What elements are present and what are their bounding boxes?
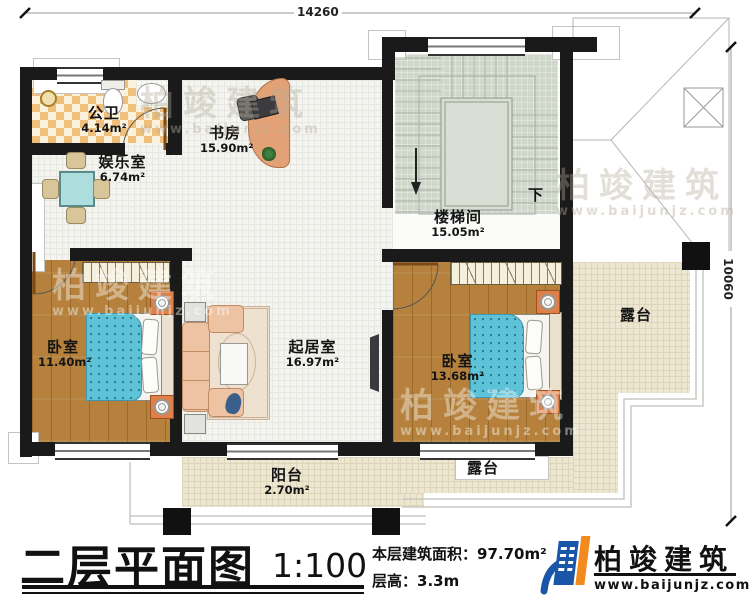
floor-height-value: 3.3m — [417, 572, 459, 590]
room-label-stairwell: 楼梯间15.05m² — [430, 210, 486, 238]
coffee-table — [220, 343, 248, 385]
wardrobe — [450, 262, 562, 285]
room-label-balcony: 阳台2.70m² — [262, 468, 312, 496]
title-underline-thin — [22, 592, 364, 594]
dimension-top: 14260 — [294, 5, 342, 19]
wall — [382, 310, 393, 455]
stair-landing — [441, 98, 512, 210]
company-website: www.baijunjz.com — [594, 578, 750, 593]
room-label-entertainment: 娱乐室6.74m² — [95, 155, 150, 183]
floor-area-value: 97.70m² — [477, 545, 547, 563]
pillow — [525, 355, 543, 390]
window — [420, 442, 535, 460]
wall — [166, 143, 182, 155]
window — [55, 442, 150, 460]
logo-divider — [594, 573, 736, 576]
company-logo-name: 柏竣建筑 — [594, 538, 734, 578]
nightstand — [536, 390, 560, 414]
floor-plan-canvas: 公卫4.14m² 娱乐室6.74m² 书房15.90m² 楼梯间15.05m² … — [0, 0, 750, 601]
armchair — [208, 305, 244, 333]
window — [57, 67, 103, 84]
wall — [168, 80, 182, 152]
floor-area-row: 本层建筑面积：97.70m² — [372, 543, 547, 564]
pillow — [525, 319, 543, 354]
sofa — [182, 322, 210, 412]
wardrobe — [82, 262, 170, 283]
room-label-terrace-right: 露台 — [614, 308, 658, 324]
floor-area-label: 本层建筑面积： — [372, 545, 477, 563]
column — [372, 508, 400, 535]
window — [428, 37, 525, 56]
room-label-terrace-bottom: 露台 — [460, 461, 506, 477]
side-table — [184, 302, 206, 322]
wall — [382, 52, 393, 208]
plant-icon — [262, 147, 276, 161]
company-logo-icon — [540, 531, 592, 597]
chair — [66, 207, 86, 224]
room-label-bedroom-left: 卧室11.40m² — [38, 340, 88, 368]
shower-fixture-icon — [40, 90, 57, 107]
room-label-living: 起居室16.97m² — [280, 340, 345, 368]
nightstand — [536, 290, 560, 314]
plan-scale: 1:100 — [272, 546, 367, 585]
floor-height-label: 层高： — [372, 572, 417, 590]
column — [682, 242, 710, 270]
pillow — [141, 356, 159, 393]
wall — [382, 249, 573, 262]
room-label-bedroom-right: 卧室13.68m² — [430, 354, 485, 382]
chair — [66, 152, 86, 169]
room-label-study: 书房15.90m² — [200, 126, 250, 154]
room-label-bathroom: 公卫4.14m² — [69, 106, 139, 134]
chair — [42, 179, 59, 199]
nightstand — [150, 291, 174, 315]
wall — [20, 67, 32, 457]
balcony-door-window — [227, 443, 338, 460]
stair-direction: 下 — [526, 188, 546, 204]
game-table — [59, 171, 95, 207]
sink-icon — [137, 83, 166, 104]
bed-duvet — [86, 313, 142, 401]
dimension-right: 10060 — [721, 251, 735, 307]
floor-height-row: 层高：3.3m — [372, 570, 459, 591]
title-underline — [22, 585, 364, 589]
pillow — [141, 318, 159, 355]
tv-icon — [370, 334, 379, 392]
wall — [182, 67, 395, 80]
roof-outline — [573, 18, 729, 254]
side-table — [184, 414, 206, 434]
nightstand — [150, 395, 174, 419]
